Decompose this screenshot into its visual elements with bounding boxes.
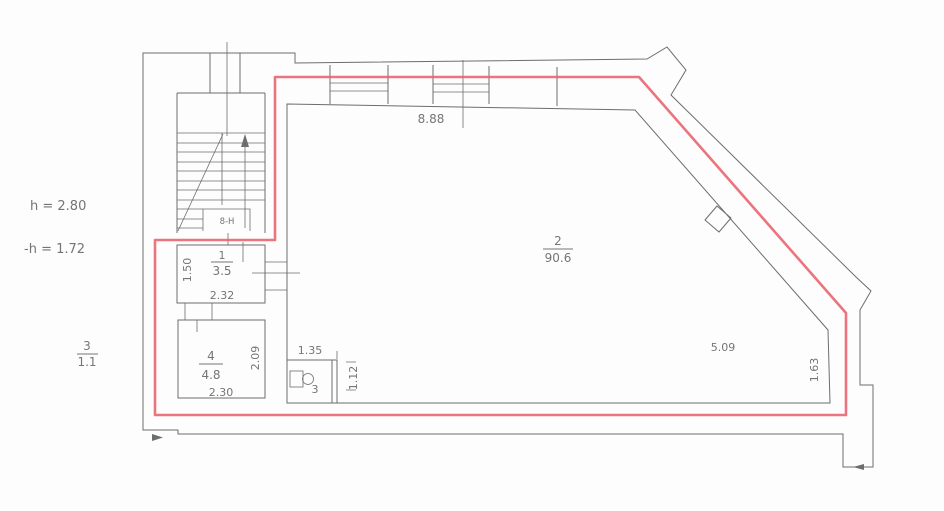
stair-break-line [178,134,223,231]
diagonal-wall-pilaster [705,206,731,232]
staircase: 8-H [177,42,265,233]
reduced-height-annotation: -h = 1.72 [24,242,85,257]
bottom-right-arrow [853,464,864,470]
wc-number: 3 [312,383,319,396]
room2-label: 2 90.6 [543,234,573,265]
room2-area: 90.6 [545,251,572,265]
stair-enclosure [177,93,265,233]
height-annotation: h = 2.80 [30,199,86,214]
room1-depth-dim: 1.50 [181,258,194,283]
room-1 [177,233,300,303]
chimney-duct [210,53,240,93]
wc-depth-dim: 1.12 [347,366,360,391]
floor-plan-page: 8-H h = 2.80 -h = 1.72 3 1.1 2 90.6 1 [0,0,944,511]
stair-arrowhead [241,134,249,147]
stair-label: 8-H [220,217,235,227]
right-wall-dim: 1.63 [808,358,821,383]
room1-room4-doorway [185,303,212,332]
room1-doorway [228,233,300,290]
room1-number: 1 [219,249,226,262]
legend-room3-fraction: 3 1.1 [77,339,98,369]
toilet-tank [290,371,303,387]
bottom-left-arrow [152,434,163,441]
wc-labels: 1.35 1.12 3 [298,344,360,396]
room4-width-dim: 2.30 [209,386,234,399]
stair-treads [177,133,265,228]
room4-area: 4.8 [201,368,220,382]
room4-number: 4 [207,349,215,363]
wc-room [287,351,356,403]
room1-area: 3.5 [212,264,231,278]
diagonal-wall-dim: 5.09 [711,341,736,354]
top-wall-dim: 8.88 [418,112,445,126]
room4-depth-dim: 2.09 [249,346,262,371]
room1-labels: 1 3.5 2.32 1.50 [181,249,234,302]
legend-room-number: 3 [83,339,91,353]
legend-room-area: 1.1 [77,355,96,369]
room1-width-dim: 2.32 [210,289,235,302]
wc-width-dim: 1.35 [298,344,323,357]
floor-plan-canvas: 8-H h = 2.80 -h = 1.72 3 1.1 2 90.6 1 [0,0,944,511]
room4-labels: 4 4.8 2.30 2.09 [199,346,262,399]
room2-number: 2 [554,234,562,248]
